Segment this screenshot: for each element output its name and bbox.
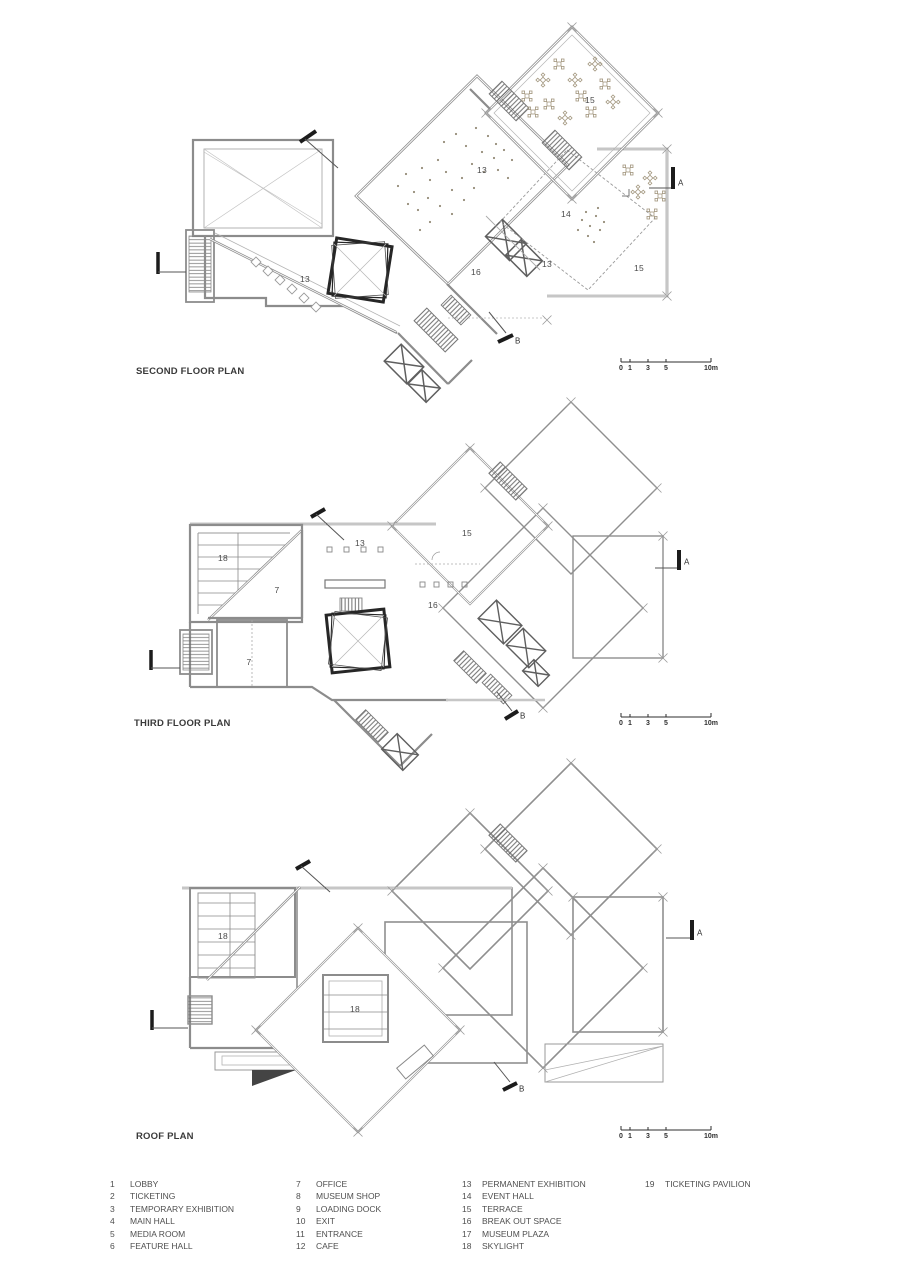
scale-tick-label: 5 (664, 365, 668, 372)
legend-number: 7 (296, 1178, 316, 1190)
section-marker-a: A (697, 929, 702, 938)
room-label-office-upper: 7 (274, 585, 279, 595)
scale-tick-label: 10m (704, 365, 718, 372)
legend-label: LOBBY (130, 1178, 158, 1190)
legend-label: ENTRANCE (316, 1228, 363, 1240)
legend-item: 9LOADING DOCK (296, 1203, 381, 1215)
legend-column-1: 1LOBBY 2TICKETING 3TEMPORARY EXHIBITION … (110, 1178, 234, 1252)
legend-number: 11 (296, 1228, 316, 1240)
room-label-break-out-space: 16 (428, 600, 438, 610)
room-label-terrace: 15 (462, 528, 472, 538)
legend-label: OFFICE (316, 1178, 347, 1190)
room-label-permanent-exhibition: 13 (477, 165, 487, 175)
legend-label: EXIT (316, 1215, 335, 1227)
plan-title-second-floor: SECOND FLOOR PLAN (136, 366, 244, 377)
legend-item: 16BREAK OUT SPACE (462, 1215, 586, 1227)
legend-item: 12CAFE (296, 1240, 381, 1252)
legend-label: MEDIA ROOM (130, 1228, 185, 1240)
legend-label: LOADING DOCK (316, 1203, 381, 1215)
legend-item: 3TEMPORARY EXHIBITION (110, 1203, 234, 1215)
room-label-break-out-space: 16 (471, 267, 481, 277)
room-label-skylight-centre: 18 (350, 1004, 360, 1014)
legend-item: 8MUSEUM SHOP (296, 1190, 381, 1202)
room-label-permanent-exhibition-small: 13 (542, 259, 552, 269)
legend-item: 14EVENT HALL (462, 1190, 586, 1202)
legend-item: 19TICKETING PAVILION (645, 1178, 751, 1190)
legend-label: MUSEUM PLAZA (482, 1228, 549, 1240)
room-label-office-lower: 7 (246, 657, 251, 667)
plan-title-third-floor: THIRD FLOOR PLAN (134, 718, 231, 729)
legend-number: 5 (110, 1228, 130, 1240)
legend-number: 4 (110, 1215, 130, 1227)
scale-tick-label: 0 (619, 365, 623, 372)
legend-item: 10EXIT (296, 1215, 381, 1227)
legend-label: FEATURE HALL (130, 1240, 193, 1252)
legend-item: 17MUSEUM PLAZA (462, 1228, 586, 1240)
legend-number: 8 (296, 1190, 316, 1202)
scale-tick-label: 3 (646, 720, 650, 727)
section-marker-a: A (678, 179, 683, 188)
legend-item: 13PERMANENT EXHIBITION (462, 1178, 586, 1190)
legend-label: MUSEUM SHOP (316, 1190, 380, 1202)
scale-tick-label: 0 (619, 1133, 623, 1140)
third-floor-plan-drawing (151, 398, 711, 771)
legend-label: PERMANENT EXHIBITION (482, 1178, 586, 1190)
legend-number: 14 (462, 1190, 482, 1202)
scale-tick-label: 1 (628, 720, 632, 727)
legend-item: 4MAIN HALL (110, 1215, 234, 1227)
legend-number: 12 (296, 1240, 316, 1252)
section-marker-a: A (684, 558, 689, 567)
legend-column-3: 13PERMANENT EXHIBITION 14EVENT HALL 15TE… (462, 1178, 586, 1252)
room-label-permanent-exhibition-left: 13 (300, 274, 310, 284)
plan-title-roof: ROOF PLAN (136, 1131, 194, 1142)
legend-number: 9 (296, 1203, 316, 1215)
legend-item: 6FEATURE HALL (110, 1240, 234, 1252)
legend-number: 19 (645, 1178, 665, 1190)
legend-label: SKYLIGHT (482, 1240, 524, 1252)
legend-column-4: 19TICKETING PAVILION (645, 1178, 751, 1190)
room-label-event-hall: 14 (561, 209, 571, 219)
legend-number: 6 (110, 1240, 130, 1252)
legend-number: 15 (462, 1203, 482, 1215)
legend-item: 2TICKETING (110, 1190, 234, 1202)
roof-plan-drawing (152, 759, 711, 1137)
legend-number: 16 (462, 1215, 482, 1227)
legend-number: 1 (110, 1178, 130, 1190)
legend-label: MAIN HALL (130, 1215, 175, 1227)
room-label-skylight-left: 18 (218, 931, 228, 941)
legend-item: 11ENTRANCE (296, 1228, 381, 1240)
legend-label: CAFE (316, 1240, 339, 1252)
legend-item: 18SKYLIGHT (462, 1240, 586, 1252)
room-label-permanent-exhibition: 13 (355, 538, 365, 548)
scale-tick-label: 0 (619, 720, 623, 727)
floor-plan-linework (0, 0, 900, 1272)
legend-item: 15TERRACE (462, 1203, 586, 1215)
room-label-terrace-top: 15 (585, 95, 595, 105)
legend-item: 5MEDIA ROOM (110, 1228, 234, 1240)
plan-sheet: SECOND FLOOR PLAN THIRD FLOOR PLAN ROOF … (0, 0, 900, 1272)
room-label-terrace-right: 15 (634, 263, 644, 273)
section-marker-b: B (515, 337, 520, 346)
legend-number: 3 (110, 1203, 130, 1215)
legend-column-2: 7OFFICE 8MUSEUM SHOP 9LOADING DOCK 10EXI… (296, 1178, 381, 1252)
section-marker-b: B (519, 1085, 524, 1094)
legend-number: 18 (462, 1240, 482, 1252)
scale-tick-label: 1 (628, 365, 632, 372)
scale-tick-label: 5 (664, 720, 668, 727)
legend-number: 2 (110, 1190, 130, 1202)
second-floor-plan-drawing (158, 23, 711, 403)
scale-tick-label: 3 (646, 365, 650, 372)
scale-tick-label: 10m (704, 720, 718, 727)
legend-item: 1LOBBY (110, 1178, 234, 1190)
legend-label: TICKETING PAVILION (665, 1178, 751, 1190)
legend-number: 10 (296, 1215, 316, 1227)
scale-tick-label: 3 (646, 1133, 650, 1140)
legend-item: 7OFFICE (296, 1178, 381, 1190)
scale-tick-label: 10m (704, 1133, 718, 1140)
scale-tick-label: 5 (664, 1133, 668, 1140)
legend-label: TICKETING (130, 1190, 175, 1202)
legend-label: TEMPORARY EXHIBITION (130, 1203, 234, 1215)
legend-label: EVENT HALL (482, 1190, 534, 1202)
legend-number: 13 (462, 1178, 482, 1190)
scale-tick-label: 1 (628, 1133, 632, 1140)
section-marker-b: B (520, 712, 525, 721)
room-label-skylight: 18 (218, 553, 228, 563)
legend-label: BREAK OUT SPACE (482, 1215, 562, 1227)
legend-number: 17 (462, 1228, 482, 1240)
legend-label: TERRACE (482, 1203, 523, 1215)
